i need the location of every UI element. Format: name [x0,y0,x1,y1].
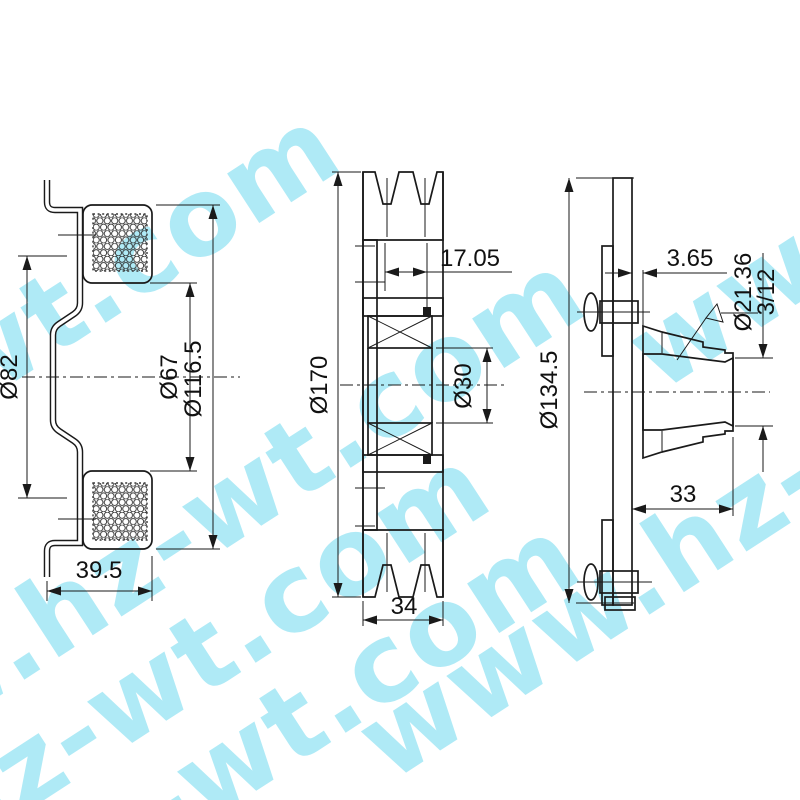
dim-diameter-67: Ø67 [156,354,183,399]
drawing-canvas: Ø82 Ø67 Ø116.5 39.5 [0,0,800,800]
dim-width-39-5: 39.5 [76,557,123,584]
pulley-top-v-groove-block [363,172,443,240]
pulley-bottom-v-groove-block [363,530,443,597]
dim-length-17-05: 17.05 [440,245,500,272]
dim-length-33: 33 [670,481,697,508]
coil-winding-upper [93,214,147,271]
dim-diameter-170: Ø170 [306,356,333,415]
dim-width-34: 34 [391,593,418,620]
coil-winding-lower [93,483,147,540]
dim-diameter-116-5: Ø116.5 [180,341,207,418]
rivet-lower [577,564,652,600]
middle-view-pulley-section: 17.05 Ø170 Ø30 34 [306,172,512,626]
right-view-hub-section: Ø134.5 3.65 33 Ø21.36 3/12 [536,178,780,610]
technical-drawing-page: www.hz-wt.com www.hz-wt.com www.hz-wt.co… [0,0,800,800]
dim-diameter-82: Ø82 [0,354,23,399]
dim-taper-3-12: 3/12 [753,269,780,316]
dim-diameter-134-5: Ø134.5 [536,351,563,430]
left-view-coil-housing-section: Ø82 Ø67 Ø116.5 39.5 [0,180,240,601]
dim-gap-3-65: 3.65 [667,245,714,272]
snap-ring [423,454,431,464]
snap-ring [423,307,431,317]
dim-diameter-30: Ø30 [450,363,477,408]
